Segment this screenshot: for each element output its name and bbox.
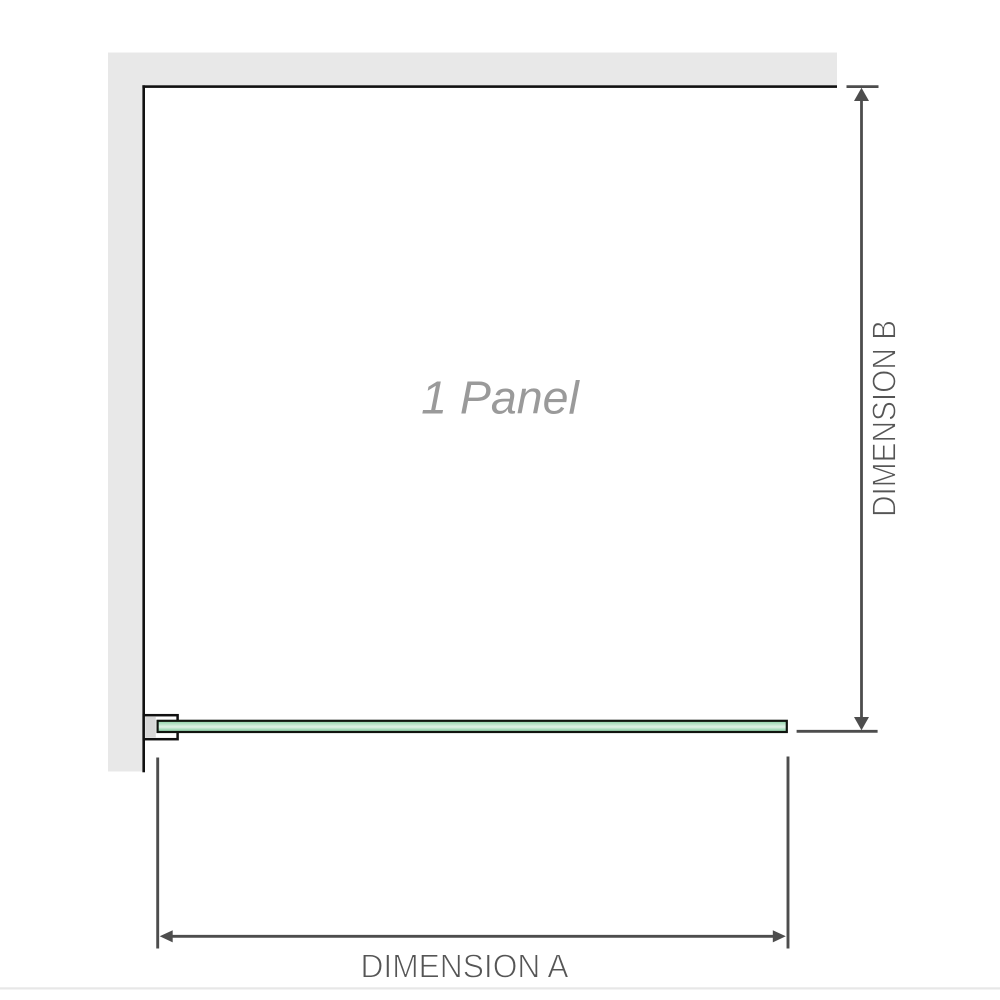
svg-text:1 Panel: 1 Panel xyxy=(421,372,580,424)
svg-text:DIMENSION B: DIMENSION B xyxy=(866,320,903,517)
svg-text:DIMENSION A: DIMENSION A xyxy=(361,948,569,985)
